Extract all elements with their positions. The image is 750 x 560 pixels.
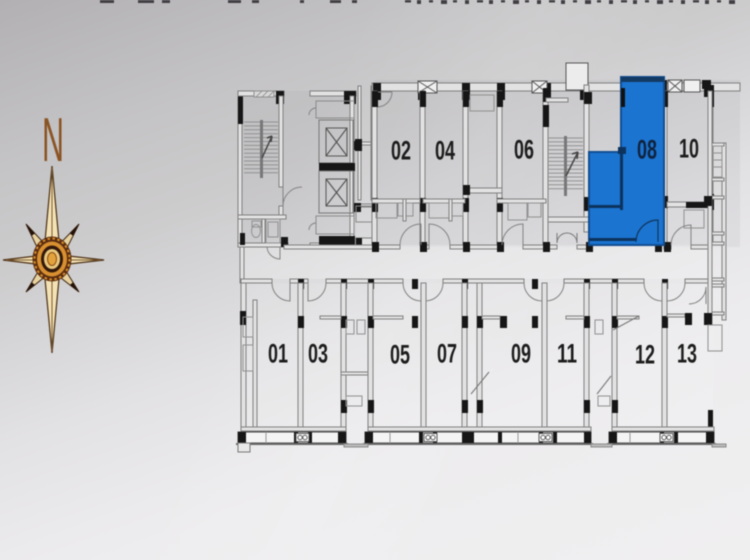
svg-text:07: 07 [437,339,457,369]
svg-text:04: 04 [435,136,455,166]
svg-text:09: 09 [511,339,531,369]
svg-text:N: N [42,106,64,175]
svg-text:11: 11 [557,339,577,369]
svg-text:13: 13 [677,339,697,369]
svg-text:03: 03 [308,339,328,369]
svg-text:06: 06 [514,135,534,165]
svg-text:02: 02 [391,136,411,166]
svg-text:12: 12 [635,340,655,370]
svg-text:01: 01 [268,339,288,369]
svg-text:08: 08 [637,135,657,165]
svg-text:10: 10 [679,134,699,164]
svg-text:05: 05 [390,340,410,370]
